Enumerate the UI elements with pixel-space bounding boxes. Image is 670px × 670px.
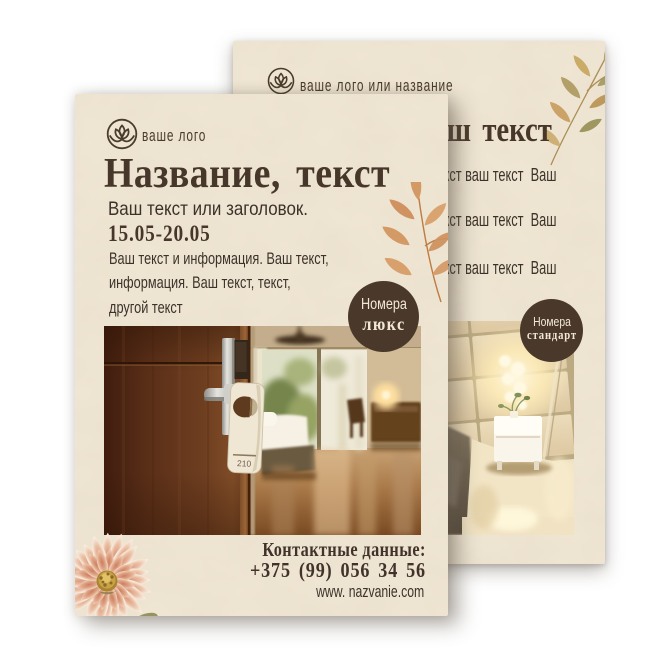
svg-text:210: 210 bbox=[237, 458, 252, 469]
